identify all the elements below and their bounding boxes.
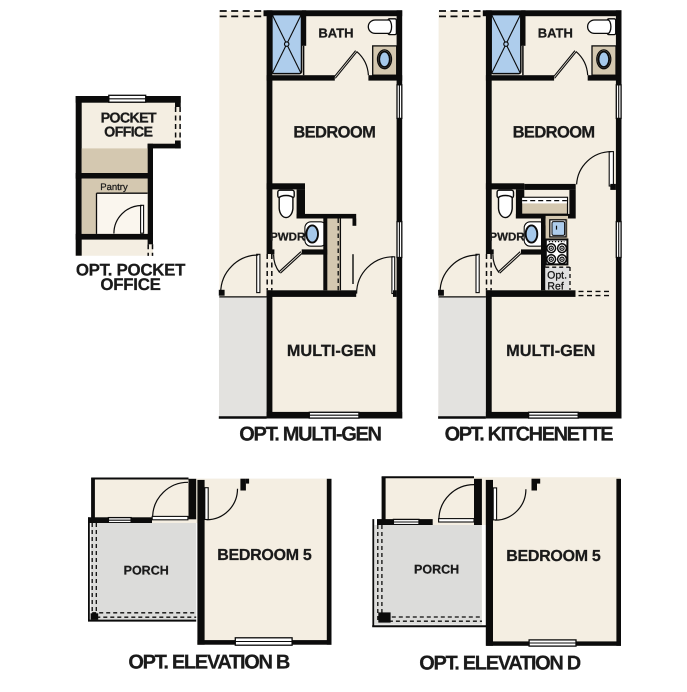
svg-text:MULTI-GEN: MULTI-GEN (287, 342, 376, 360)
svg-text:OPT. KITCHENETTE: OPT. KITCHENETTE (445, 424, 614, 446)
svg-text:OFFICE: OFFICE (100, 275, 160, 294)
svg-text:PWDR: PWDR (270, 231, 306, 243)
svg-text:Ref: Ref (547, 280, 563, 292)
svg-text:BEDROOM 5: BEDROOM 5 (506, 548, 601, 565)
svg-text:Pantry: Pantry (100, 182, 128, 193)
svg-text:OPT. ELEVATION D: OPT. ELEVATION D (419, 653, 581, 675)
svg-text:PWDR: PWDR (489, 231, 525, 243)
svg-text:BEDROOM: BEDROOM (513, 124, 595, 142)
svg-text:BEDROOM: BEDROOM (293, 124, 375, 142)
svg-text:BATH: BATH (538, 26, 573, 41)
svg-text:PORCH: PORCH (124, 563, 169, 577)
svg-text:OPT. ELEVATION B: OPT. ELEVATION B (128, 652, 290, 674)
svg-text:PORCH: PORCH (414, 562, 459, 576)
svg-text:BATH: BATH (318, 26, 353, 41)
svg-text:OPT. MULTI-GEN: OPT. MULTI-GEN (239, 424, 381, 446)
svg-text:MULTI-GEN: MULTI-GEN (506, 342, 595, 360)
svg-text:BEDROOM 5: BEDROOM 5 (217, 547, 312, 564)
svg-text:OFFICE: OFFICE (104, 124, 152, 140)
